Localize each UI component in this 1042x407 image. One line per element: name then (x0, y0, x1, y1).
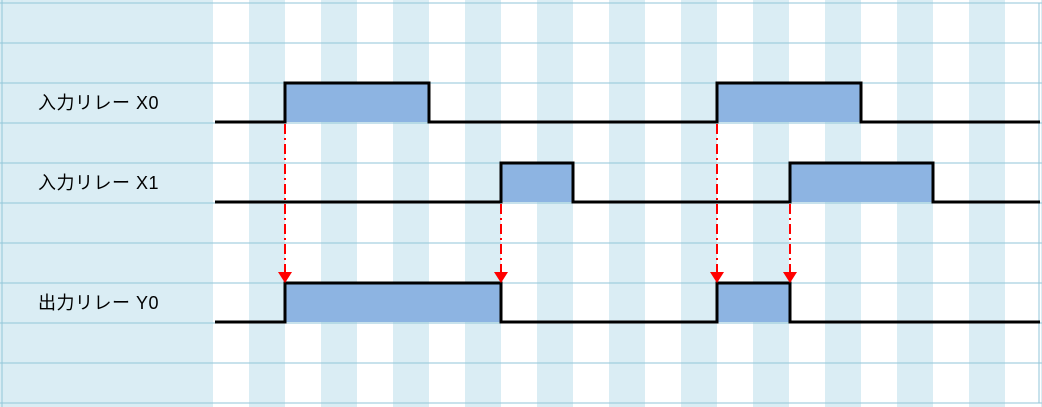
timing-chart: 入力リレー X0 入力リレー X1 出力リレー Y0 (0, 0, 1042, 407)
pulse-fill-y0 (285, 283, 501, 322)
signal-label-x0: 入力リレー X0 (38, 92, 238, 114)
timing-diagram-svg (0, 0, 1042, 407)
pulse-fill-x1 (790, 163, 933, 202)
pulse-fill-x0 (717, 83, 861, 122)
signal-label-x1: 入力リレー X1 (38, 172, 238, 194)
signal-label-y0: 出力リレー Y0 (38, 292, 238, 314)
pulse-fill-y0 (717, 283, 790, 322)
pulse-fill-x0 (285, 83, 429, 122)
pulse-fill-x1 (501, 163, 573, 202)
